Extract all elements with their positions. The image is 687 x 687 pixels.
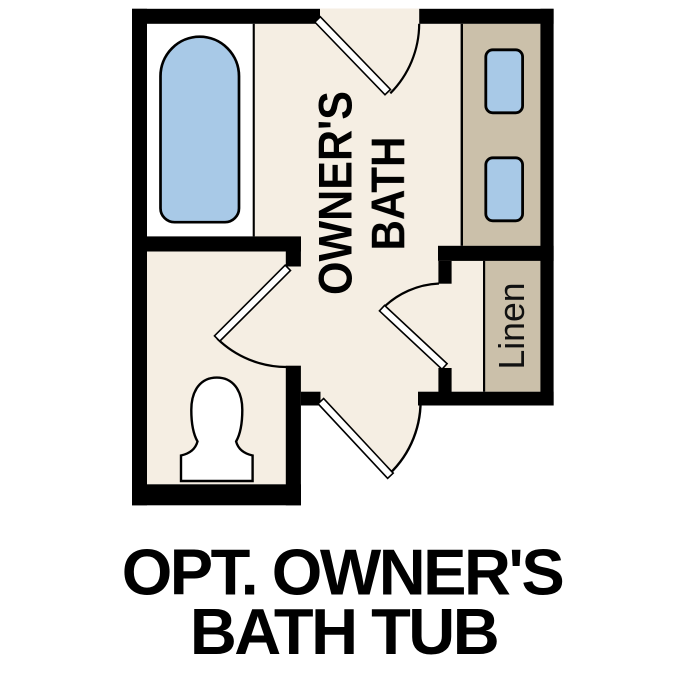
svg-text:Linen: Linen (491, 283, 532, 370)
svg-text:BATH: BATH (361, 137, 414, 251)
svg-text:OWNER'S: OWNER'S (309, 91, 362, 295)
svg-text:BATH TUB: BATH TUB (190, 595, 497, 668)
